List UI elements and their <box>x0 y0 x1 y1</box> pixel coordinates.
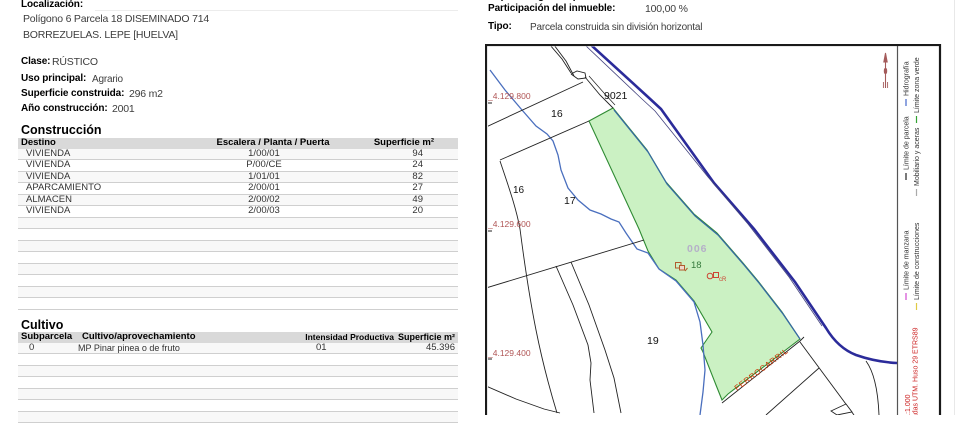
svg-text:9021: 9021 <box>604 90 628 102</box>
svg-text:19: 19 <box>647 335 659 347</box>
svg-text:Límite de manzana: Límite de manzana <box>904 230 911 290</box>
svg-text:_4.129.600: _4.129.600 <box>487 219 531 229</box>
svg-text:18: 18 <box>691 260 702 271</box>
svg-text:Mobiliario y aceras: Mobiliario y aceras <box>914 127 921 186</box>
svg-text:_4.129.400: _4.129.400 <box>487 348 531 358</box>
svg-text:16: 16 <box>551 108 563 120</box>
svg-text:16: 16 <box>513 185 525 196</box>
svg-text:17: 17 <box>564 195 576 207</box>
svg-text:ESCALA 1:1.000: ESCALA 1:1.000 <box>905 394 912 415</box>
svg-text:Hidrografía: Hidrografía <box>904 61 911 96</box>
svg-text:Límite de construcciones: Límite de construcciones <box>914 222 921 300</box>
svg-text:006: 006 <box>687 243 708 255</box>
svg-text:cR: cR <box>719 277 727 283</box>
svg-text:Coordenadas UTM. Huso 29 ETRS8: Coordenadas UTM. Huso 29 ETRS89 <box>913 327 920 415</box>
svg-text:Límite de parcela: Límite de parcela <box>904 116 911 170</box>
svg-text:_4.129.800: _4.129.800 <box>487 91 531 101</box>
svg-text:Límite zona verde: Límite zona verde <box>914 57 921 113</box>
